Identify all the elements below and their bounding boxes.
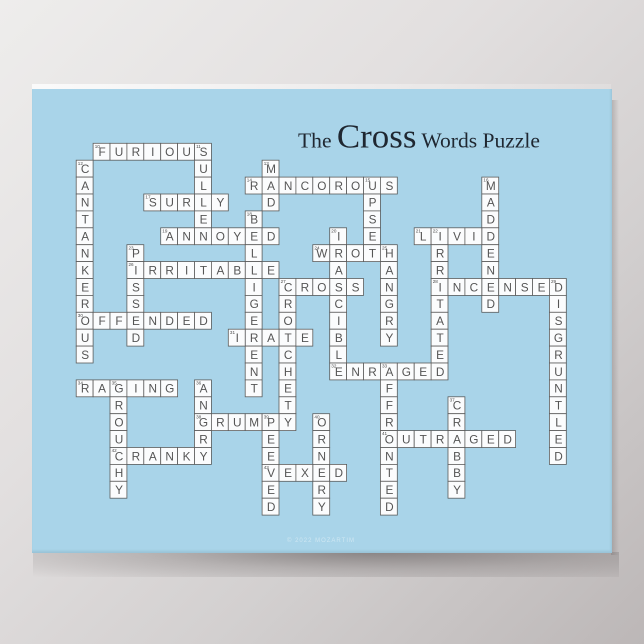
svg-text:D: D — [385, 500, 394, 514]
svg-text:R: R — [554, 348, 563, 362]
svg-text:19: 19 — [162, 228, 168, 233]
svg-text:23: 23 — [129, 245, 135, 250]
svg-text:A: A — [487, 196, 495, 210]
svg-text:R: R — [318, 483, 327, 497]
svg-text:G: G — [402, 365, 411, 379]
svg-text:A: A — [216, 263, 224, 277]
svg-text:I: I — [438, 230, 441, 244]
svg-text:13: 13 — [264, 161, 270, 166]
svg-text:D: D — [132, 331, 141, 345]
svg-text:36: 36 — [196, 381, 202, 386]
svg-text:38: 38 — [196, 414, 202, 419]
svg-text:D: D — [267, 500, 276, 514]
svg-text:S: S — [369, 213, 377, 227]
svg-text:H: H — [115, 466, 124, 480]
svg-text:F: F — [386, 382, 393, 396]
svg-text:14: 14 — [247, 178, 253, 183]
svg-text:16: 16 — [483, 178, 489, 183]
svg-text:S: S — [335, 280, 343, 294]
svg-text:E: E — [487, 280, 495, 294]
svg-text:Y: Y — [216, 196, 224, 210]
svg-text:U: U — [81, 331, 90, 345]
svg-text:E: E — [132, 314, 140, 328]
svg-text:A: A — [385, 263, 393, 277]
svg-text:R: R — [132, 449, 141, 463]
svg-text:42: 42 — [112, 448, 118, 453]
svg-text:A: A — [149, 449, 157, 463]
svg-text:Y: Y — [318, 500, 326, 514]
svg-text:N: N — [149, 382, 158, 396]
svg-text:O: O — [165, 145, 174, 159]
svg-text:E: E — [200, 213, 208, 227]
svg-text:I: I — [134, 382, 137, 396]
svg-text:O: O — [317, 280, 326, 294]
svg-text:E: E — [487, 247, 495, 261]
svg-text:S: S — [81, 348, 89, 362]
svg-text:N: N — [554, 382, 563, 396]
svg-text:N: N — [385, 280, 394, 294]
svg-text:S: S — [521, 280, 529, 294]
svg-text:L: L — [200, 196, 207, 210]
svg-text:37: 37 — [450, 397, 456, 402]
svg-text:G: G — [554, 331, 563, 345]
svg-text:E: E — [284, 466, 292, 480]
svg-text:E: E — [538, 280, 546, 294]
svg-text:I: I — [337, 230, 340, 244]
svg-text:C: C — [284, 348, 293, 362]
svg-text:E: E — [369, 230, 377, 244]
svg-text:I: I — [151, 145, 154, 159]
svg-text:U: U — [199, 162, 208, 176]
svg-text:B: B — [453, 449, 461, 463]
svg-text:T: T — [386, 466, 393, 480]
svg-text:U: U — [115, 145, 124, 159]
svg-text:H: H — [284, 365, 293, 379]
svg-text:I: I — [472, 230, 475, 244]
svg-text:Y: Y — [385, 331, 393, 345]
svg-text:R: R — [385, 314, 394, 328]
svg-text:U: U — [233, 416, 242, 430]
svg-text:E: E — [183, 314, 191, 328]
svg-text:U: U — [115, 432, 124, 446]
svg-text:E: E — [419, 365, 427, 379]
svg-text:N: N — [284, 179, 293, 193]
svg-text:32: 32 — [331, 364, 337, 369]
svg-text:A: A — [436, 314, 444, 328]
svg-text:R: R — [199, 432, 208, 446]
svg-text:Y: Y — [453, 483, 461, 497]
svg-text:L: L — [200, 179, 207, 193]
svg-text:N: N — [81, 196, 90, 210]
svg-text:R: R — [301, 280, 310, 294]
svg-text:U: U — [165, 196, 174, 210]
svg-text:R: R — [368, 365, 377, 379]
svg-text:C: C — [470, 280, 479, 294]
svg-text:T: T — [436, 331, 443, 345]
svg-text:L: L — [251, 263, 258, 277]
svg-text:E: E — [250, 348, 258, 362]
svg-text:N: N — [165, 449, 174, 463]
svg-text:T: T — [436, 297, 443, 311]
svg-text:25: 25 — [382, 245, 388, 250]
svg-text:U: U — [554, 365, 563, 379]
svg-text:V: V — [453, 230, 461, 244]
svg-text:31: 31 — [230, 330, 236, 335]
svg-text:28: 28 — [433, 279, 439, 284]
svg-text:D: D — [267, 230, 276, 244]
svg-text:20: 20 — [331, 228, 337, 233]
svg-text:I: I — [134, 263, 137, 277]
svg-text:R: R — [436, 432, 445, 446]
svg-text:12: 12 — [78, 161, 84, 166]
svg-text:C: C — [301, 179, 310, 193]
svg-text:O: O — [351, 179, 360, 193]
svg-text:M: M — [249, 416, 259, 430]
svg-text:F: F — [98, 314, 105, 328]
svg-text:S: S — [555, 314, 563, 328]
svg-text:D: D — [487, 230, 496, 244]
svg-text:O: O — [216, 230, 225, 244]
svg-text:T: T — [284, 331, 291, 345]
svg-text:D: D — [503, 432, 512, 446]
svg-text:E: E — [385, 483, 393, 497]
svg-text:18: 18 — [247, 212, 253, 217]
svg-text:O: O — [284, 314, 293, 328]
svg-text:D: D — [199, 314, 208, 328]
svg-text:A: A — [81, 179, 89, 193]
svg-text:E: E — [267, 483, 275, 497]
svg-text:D: D — [554, 449, 563, 463]
svg-text:D: D — [267, 196, 276, 210]
svg-text:E: E — [250, 314, 258, 328]
svg-text:T: T — [420, 432, 427, 446]
svg-text:R: R — [250, 331, 259, 345]
svg-text:C: C — [335, 297, 344, 311]
svg-text:A: A — [453, 432, 461, 446]
svg-text:N: N — [318, 449, 327, 463]
svg-text:O: O — [317, 179, 326, 193]
svg-text:E: E — [487, 432, 495, 446]
svg-text:R: R — [385, 416, 394, 430]
svg-text:I: I — [557, 297, 560, 311]
svg-text:E: E — [81, 280, 89, 294]
svg-text:N: N — [351, 365, 360, 379]
svg-text:G: G — [385, 297, 394, 311]
svg-text:I: I — [185, 263, 188, 277]
svg-text:K: K — [81, 263, 89, 277]
svg-text:O: O — [114, 416, 123, 430]
svg-text:T: T — [251, 382, 258, 396]
svg-text:P: P — [369, 196, 377, 210]
svg-text:R: R — [318, 432, 327, 446]
svg-text:Y: Y — [284, 416, 292, 430]
svg-text:29: 29 — [551, 279, 557, 284]
svg-text:Y: Y — [200, 449, 208, 463]
svg-text:E: E — [267, 263, 275, 277]
svg-text:T: T — [555, 399, 562, 413]
svg-text:S: S — [132, 280, 140, 294]
svg-text:E: E — [555, 432, 563, 446]
svg-text:E: E — [250, 230, 258, 244]
svg-text:35: 35 — [112, 381, 118, 386]
svg-text:I: I — [253, 280, 256, 294]
svg-text:G: G — [469, 432, 478, 446]
svg-text:R: R — [453, 416, 462, 430]
svg-text:D: D — [165, 314, 174, 328]
svg-text:N: N — [503, 280, 512, 294]
svg-text:N: N — [199, 230, 208, 244]
svg-text:N: N — [149, 314, 158, 328]
svg-text:The Cross Words Puzzle: The Cross Words Puzzle — [298, 119, 540, 156]
svg-text:A: A — [81, 230, 89, 244]
svg-text:X: X — [301, 466, 309, 480]
svg-text:G: G — [165, 382, 174, 396]
svg-text:R: R — [335, 179, 344, 193]
svg-text:E: E — [318, 466, 326, 480]
svg-text:R: R — [165, 263, 174, 277]
svg-text:R: R — [182, 196, 191, 210]
svg-text:I: I — [236, 331, 239, 345]
svg-text:A: A — [267, 179, 275, 193]
svg-text:T: T — [200, 263, 207, 277]
svg-text:27: 27 — [281, 279, 287, 284]
svg-text:39: 39 — [264, 414, 270, 419]
svg-text:33: 33 — [382, 364, 388, 369]
svg-text:D: D — [487, 297, 496, 311]
svg-text:T: T — [82, 213, 89, 227]
svg-text:L: L — [336, 348, 343, 362]
svg-text:Y: Y — [233, 230, 241, 244]
svg-text:N: N — [487, 263, 496, 277]
svg-text:N: N — [385, 449, 394, 463]
svg-text:R: R — [216, 416, 225, 430]
svg-text:R: R — [81, 297, 90, 311]
svg-text:E: E — [301, 331, 309, 345]
svg-text:A: A — [335, 263, 343, 277]
svg-text:43: 43 — [264, 465, 270, 470]
svg-text:B: B — [233, 263, 241, 277]
svg-text:S: S — [352, 280, 360, 294]
svg-text:26: 26 — [129, 262, 135, 267]
svg-text:D: D — [335, 466, 344, 480]
svg-text:Y: Y — [115, 483, 123, 497]
svg-text:D: D — [487, 213, 496, 227]
svg-text:U: U — [402, 432, 411, 446]
svg-text:U: U — [182, 145, 191, 159]
svg-text:I: I — [438, 280, 441, 294]
svg-text:E: E — [267, 449, 275, 463]
svg-text:15: 15 — [365, 178, 371, 183]
svg-text:21: 21 — [416, 228, 422, 233]
svg-text:34: 34 — [78, 381, 84, 386]
svg-text:S: S — [132, 297, 140, 311]
svg-text:N: N — [182, 230, 191, 244]
svg-text:R: R — [149, 263, 158, 277]
svg-text:10: 10 — [95, 144, 101, 149]
svg-text:T: T — [369, 247, 376, 261]
svg-text:A: A — [267, 331, 275, 345]
svg-text:L: L — [251, 247, 258, 261]
svg-text:11: 11 — [196, 144, 201, 149]
svg-text:22: 22 — [433, 228, 439, 233]
svg-text:T: T — [284, 399, 291, 413]
svg-text:I: I — [337, 314, 340, 328]
svg-text:R: R — [436, 263, 445, 277]
svg-text:G: G — [250, 297, 259, 311]
svg-text:R: R — [115, 399, 124, 413]
svg-text:17: 17 — [145, 195, 151, 200]
svg-text:L: L — [420, 230, 427, 244]
svg-text:E: E — [284, 382, 292, 396]
svg-text:L: L — [555, 416, 562, 430]
svg-text:R: R — [284, 297, 293, 311]
svg-text:O: O — [351, 247, 360, 261]
svg-text:F: F — [115, 314, 122, 328]
svg-text:F: F — [386, 399, 393, 413]
svg-text:N: N — [81, 247, 90, 261]
svg-text:K: K — [183, 449, 191, 463]
svg-text:N: N — [250, 365, 259, 379]
svg-text:R: R — [335, 247, 344, 261]
svg-text:24: 24 — [314, 245, 320, 250]
svg-text:R: R — [436, 247, 445, 261]
svg-text:N: N — [453, 280, 462, 294]
svg-text:A: A — [98, 382, 106, 396]
svg-text:S: S — [385, 179, 393, 193]
svg-text:N: N — [199, 399, 208, 413]
svg-text:30: 30 — [78, 313, 84, 318]
svg-text:41: 41 — [382, 431, 388, 436]
svg-text:R: R — [132, 145, 141, 159]
svg-text:E: E — [436, 348, 444, 362]
svg-text:B: B — [335, 331, 343, 345]
svg-text:B: B — [453, 466, 461, 480]
svg-text:E: E — [267, 432, 275, 446]
svg-text:D: D — [436, 365, 445, 379]
svg-text:40: 40 — [314, 414, 320, 419]
